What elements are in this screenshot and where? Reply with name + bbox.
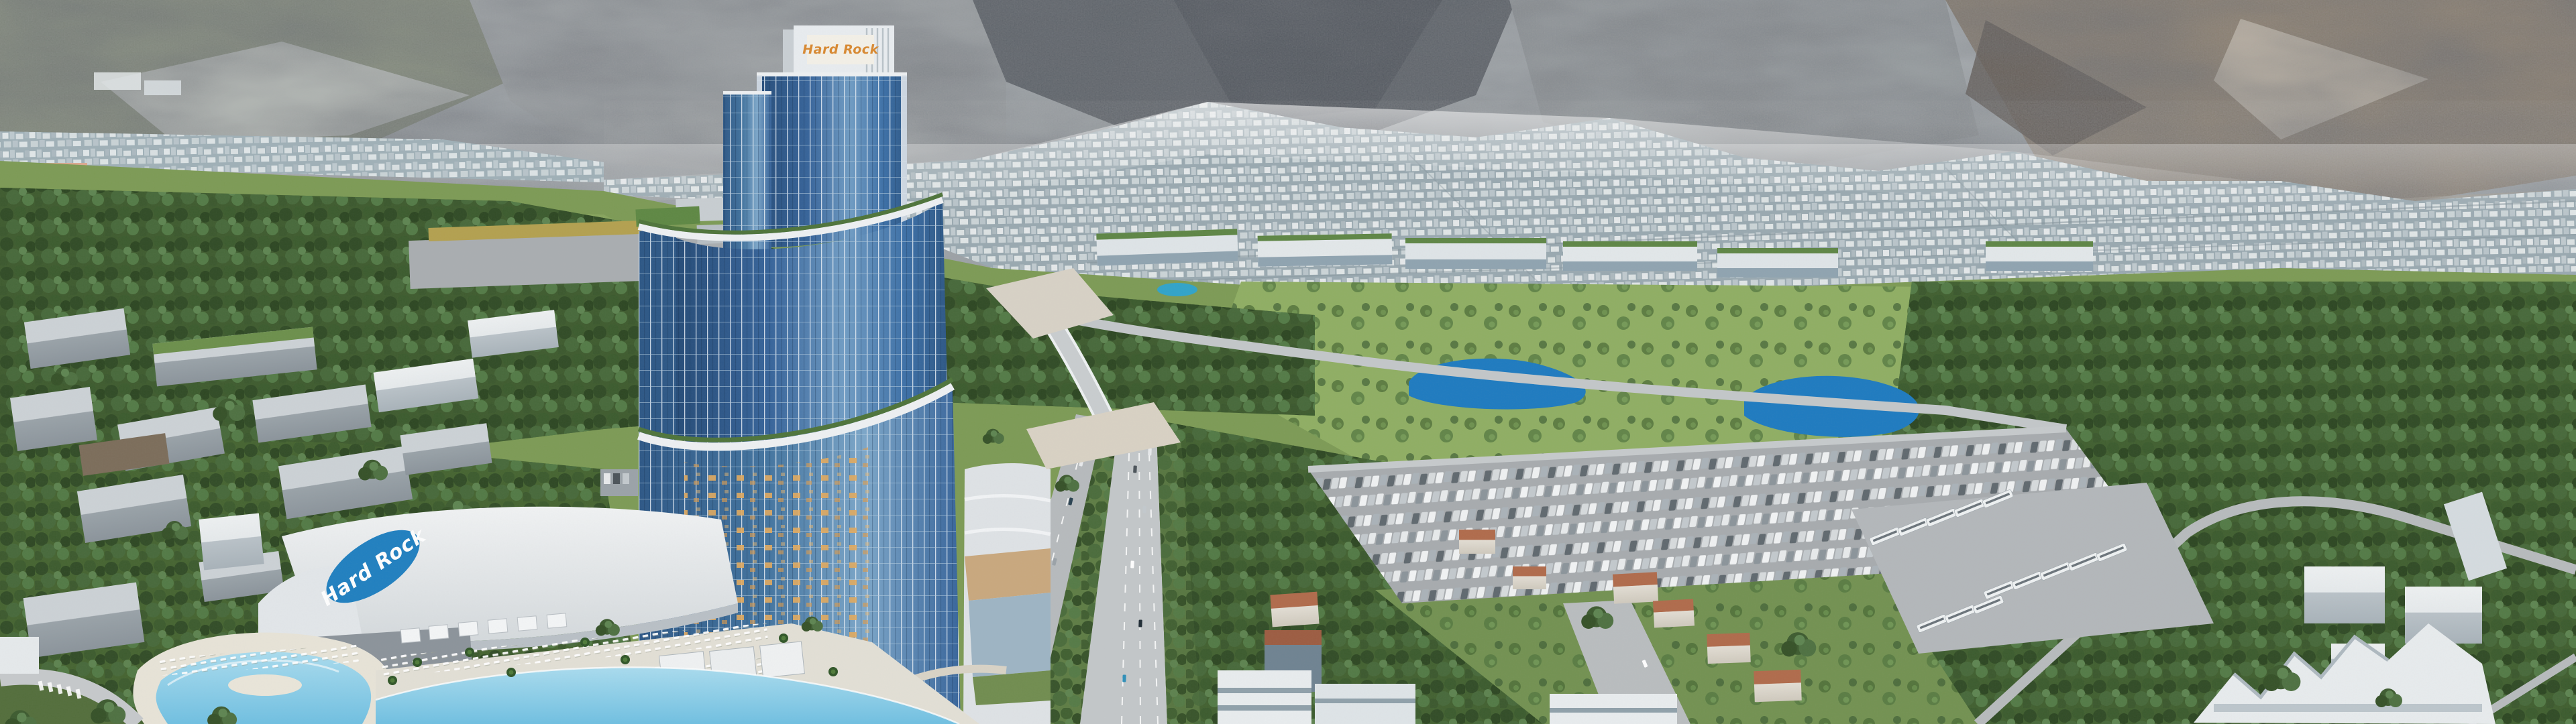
global-grain	[0, 0, 2576, 724]
aerial-rendering: Hard Rock	[0, 0, 2576, 724]
aerial-rendering-stage: Hard Rock	[0, 0, 2576, 724]
